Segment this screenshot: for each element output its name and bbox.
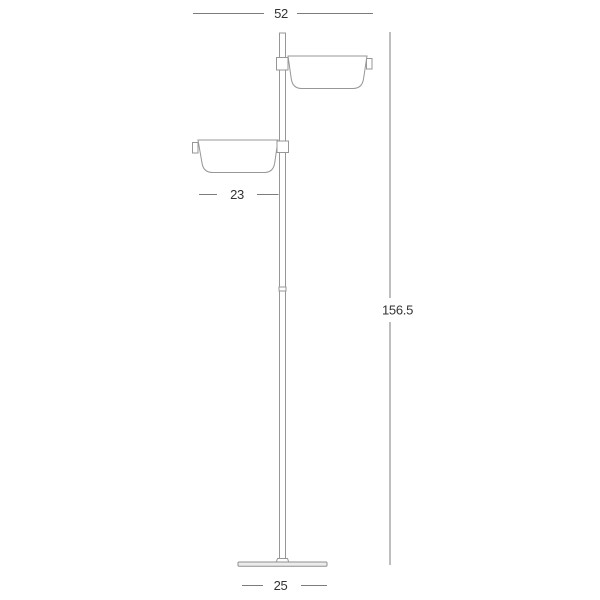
base-plate [238, 562, 327, 566]
dimension-shade-width: 23 [199, 187, 279, 202]
base-collar [276, 559, 288, 563]
lower-shade-bracket [277, 141, 289, 153]
dimension-top-width: 52 [193, 6, 373, 21]
base-group [238, 559, 327, 567]
lamp-pole [280, 33, 286, 559]
lower-shade-end-tab [193, 143, 199, 154]
lower-shade-body [198, 140, 278, 173]
upper-shade-group [277, 56, 373, 89]
dimension-base-width: 25 [242, 578, 327, 593]
dimension-label-base-width: 25 [274, 578, 288, 593]
dimension-label-top-width: 52 [274, 6, 288, 21]
dimension-total-height: 156.5 [382, 32, 413, 565]
dimension-label-shade-width: 23 [230, 187, 244, 202]
upper-shade-body [288, 56, 367, 89]
lamp-pole-group [279, 33, 286, 559]
upper-shade-end-tab [367, 59, 373, 70]
lower-shade-group [193, 140, 289, 173]
technical-drawing-canvas: 52 23 156.5 25 [0, 0, 600, 600]
upper-shade-bracket [277, 58, 289, 71]
dimension-label-total-height: 156.5 [382, 303, 413, 318]
lamp-dimension-drawing: 52 23 156.5 25 [0, 0, 600, 600]
pole-joint [279, 287, 286, 291]
